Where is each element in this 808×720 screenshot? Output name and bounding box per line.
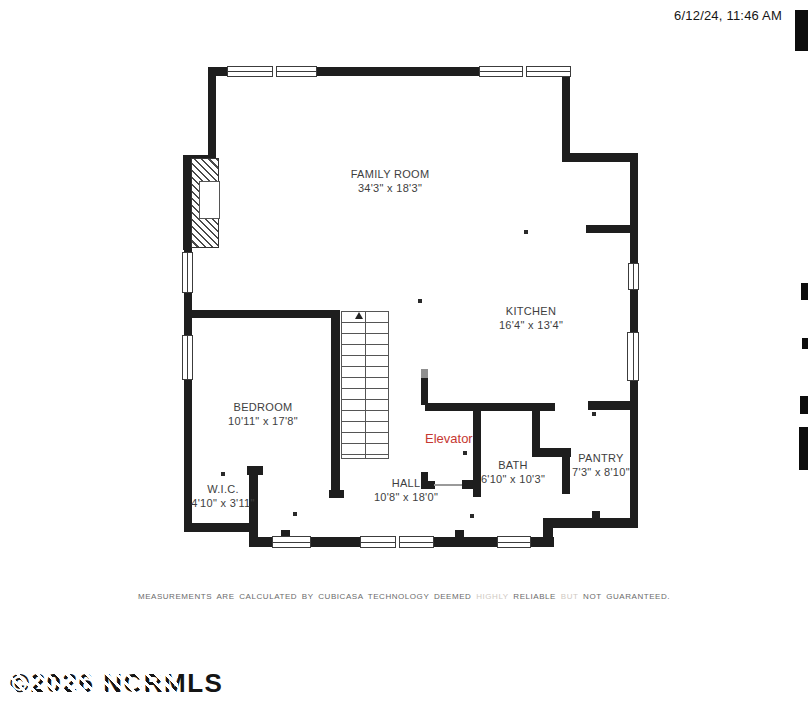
wall-dot <box>592 412 596 416</box>
room-label-kitchen: KITCHEN 16'4" x 13'4" <box>471 305 591 332</box>
window <box>360 536 434 548</box>
room-name: BEDROOM <box>203 401 323 415</box>
room-name: KITCHEN <box>471 305 591 319</box>
elevator-wall <box>421 378 428 405</box>
room-dims: 34'3" x 18'3" <box>325 182 455 196</box>
room-dims: 10'8" x 18'0" <box>346 491 466 505</box>
room-dims: 16'4" x 13'4" <box>471 319 591 333</box>
right-wall <box>630 155 638 264</box>
disclaimer-text: MEASUREMENTS ARE CALCULATED BY CUBICASA … <box>138 592 472 601</box>
wall-segment <box>208 67 216 162</box>
room-name: FAMILY ROOM <box>325 168 455 182</box>
measurement-disclaimer: MEASUREMENTS ARE CALCULATED BY CUBICASA … <box>0 592 808 601</box>
window <box>628 263 639 290</box>
right-wall <box>630 290 638 333</box>
wall-foot <box>329 490 344 498</box>
room-name: W.I.C. <box>163 483 283 497</box>
room-name: PANTRY <box>546 452 656 466</box>
floorplan-page: 6/12/24, 11:46 AM <box>0 0 808 720</box>
wall-segment <box>562 67 570 162</box>
edge-artifact <box>799 427 808 470</box>
timestamp: 6/12/24, 11:46 AM <box>674 8 782 23</box>
window <box>627 332 639 381</box>
wall-dot <box>463 451 467 455</box>
disclaimer-text: RELIABLE <box>513 592 556 601</box>
room-dims: 7'3" x 8'10" <box>546 466 656 480</box>
mls-copyright-watermark: ©2026 NCRMLS <box>10 668 223 699</box>
edge-artifact <box>801 283 808 300</box>
edge-artifact <box>802 338 808 349</box>
room-name: HALL <box>346 477 466 491</box>
wall-dot <box>293 512 297 516</box>
window <box>182 335 193 380</box>
disclaimer-text-faded: BUT <box>561 592 579 601</box>
disclaimer-text-faded: HIGHLY <box>476 592 508 601</box>
stair-wall <box>331 310 340 498</box>
wall-bump <box>592 511 600 518</box>
window <box>272 536 311 548</box>
room-label-hall: HALL 10'8" x 18'0" <box>346 477 466 504</box>
wall-dot <box>470 514 474 518</box>
room-dims: 10'11" x 17'8" <box>203 415 323 429</box>
edge-artifact <box>795 10 808 51</box>
wall-segment <box>562 153 638 162</box>
kitchen-stub-wall <box>586 225 632 233</box>
bottom-wall <box>255 537 273 547</box>
pantry-bottom-wall <box>550 518 638 528</box>
window <box>479 66 571 77</box>
room-label-bedroom: BEDROOM 10'11" x 17'8" <box>203 401 323 428</box>
bedroom-top-wall <box>184 310 339 318</box>
stair-direction-arrow <box>355 312 363 319</box>
room-label-pantry: PANTRY 7'3" x 8'10" <box>546 452 656 479</box>
window-sash <box>395 536 400 548</box>
room-label-wic: W.I.C. 4'10" x 3'11" <box>163 483 283 510</box>
pantry-top-wall <box>588 401 638 410</box>
window-sash <box>272 66 277 77</box>
bottom-wall <box>433 537 498 547</box>
window-sash <box>522 66 527 77</box>
disclaimer-text: NOT GUARANTEED. <box>583 592 670 601</box>
wall-dot <box>418 299 422 303</box>
window <box>497 536 531 548</box>
wic-bottom-wall <box>184 523 258 532</box>
bottom-wall <box>310 537 361 547</box>
edge-artifact <box>800 396 808 414</box>
room-dims: 4'10" x 3'11" <box>163 497 283 511</box>
elevator-label: Elevator <box>425 431 473 446</box>
staircase <box>341 311 389 459</box>
window <box>227 66 317 77</box>
wall-segment <box>183 162 191 250</box>
bath-right-wall <box>532 409 540 451</box>
fireplace-firebox <box>199 181 220 219</box>
room-label-family-room: FAMILY ROOM 34'3" x 18'3" <box>325 168 455 195</box>
wall-dot <box>524 230 528 234</box>
wall-dot <box>221 472 225 476</box>
window <box>182 252 193 293</box>
wall-bump <box>455 530 464 537</box>
